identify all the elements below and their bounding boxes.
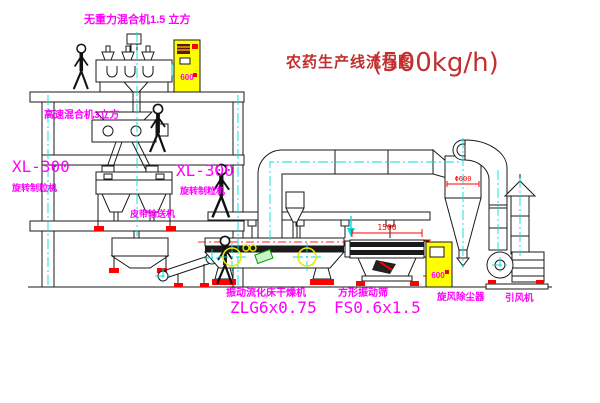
fan-motor [512, 252, 544, 282]
mixer-discharge-cone [124, 82, 148, 92]
induced-draft-fan [486, 252, 548, 289]
process-flow-diagram: 600 [0, 0, 600, 403]
mixer-inlet-valves [102, 46, 154, 60]
label-granulator-center-model: XL-300 [176, 161, 234, 180]
mixer-body [92, 120, 156, 142]
label-granulator-center-name: 旋转制粒机 [179, 185, 225, 196]
diagram-capacity: (500kg/h) [372, 48, 499, 78]
cabinet-top-text: 600 [180, 73, 194, 82]
worker-figure-top [74, 44, 88, 89]
dim-length-text: 1500 [377, 223, 396, 232]
label-dryer-model: ZLG6x0.75 [230, 298, 317, 317]
label-granulator-left-name: 旋转制粒机 [11, 182, 57, 193]
label-fan: 引风机 [505, 292, 534, 304]
flow-diagram-canvas: 600 [0, 0, 600, 403]
cabinet-indicator [192, 44, 198, 49]
control-cabinet-right: 600 [426, 242, 452, 287]
cabinet-right-text: 600 [431, 271, 445, 280]
control-cabinet-top: 600 [174, 40, 200, 92]
cabinet-louver [177, 44, 190, 54]
discharge-hopper [109, 231, 168, 273]
label-gravity-free-mixer: 无重力混合机1.5 立方 [83, 12, 190, 26]
label-granulator-left-model: XL-300 [12, 157, 70, 176]
label-high-speed-mixer: 高速混合机3立方 [44, 108, 120, 121]
granulator-cone-left [102, 194, 130, 212]
label-cyclone: 旋风除尘器 [436, 291, 485, 303]
label-belt-conveyor: 皮带输送机 [129, 208, 175, 219]
fan-base [486, 284, 548, 289]
label-screen-model: FS0.6x1.5 [334, 298, 421, 317]
granulator-foot [94, 226, 104, 231]
square-vibrating-screen: 1500 540 [345, 216, 437, 286]
granulator-foot [166, 226, 176, 231]
suspension-frame [208, 212, 430, 220]
